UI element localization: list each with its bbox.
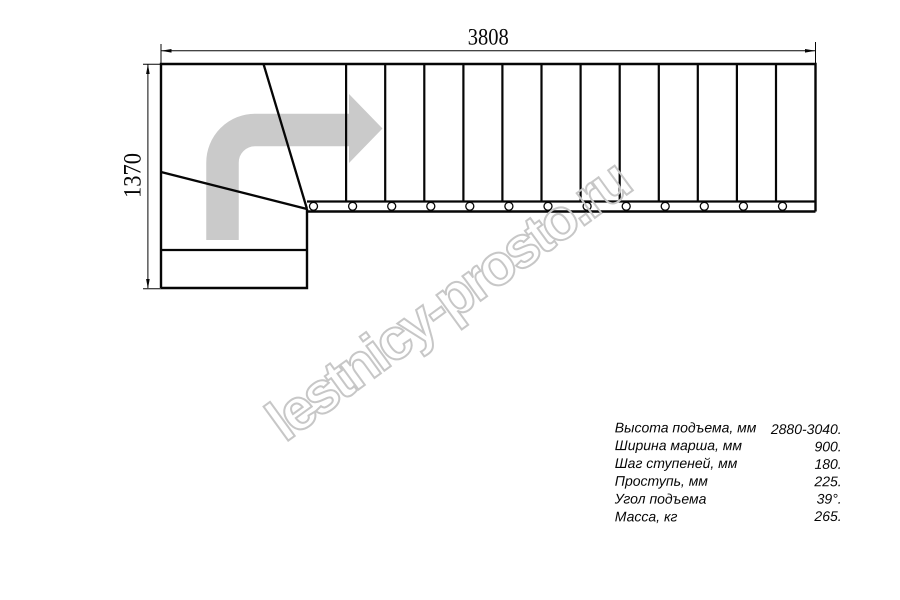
svg-text:225.: 225.	[813, 473, 841, 489]
svg-text:Угол подъема: Угол подъема	[614, 491, 707, 507]
svg-text:39°.: 39°.	[817, 491, 842, 507]
svg-text:265.: 265.	[813, 508, 841, 524]
svg-text:Шаг ступеней, мм: Шаг ступеней, мм	[615, 455, 738, 471]
svg-text:Проступь, мм: Проступь, мм	[615, 473, 709, 489]
svg-text:3808: 3808	[468, 24, 509, 50]
svg-text:2880-3040.: 2880-3040.	[770, 421, 842, 437]
svg-text:Высота подъема, мм: Высота подъема, мм	[615, 419, 757, 435]
svg-text:Ширина марша, мм: Ширина марша, мм	[615, 437, 743, 453]
svg-text:1370: 1370	[120, 153, 147, 198]
svg-text:180.: 180.	[814, 456, 841, 472]
svg-text:Масса, кг: Масса, кг	[615, 508, 678, 524]
svg-text:900.: 900.	[814, 438, 841, 454]
